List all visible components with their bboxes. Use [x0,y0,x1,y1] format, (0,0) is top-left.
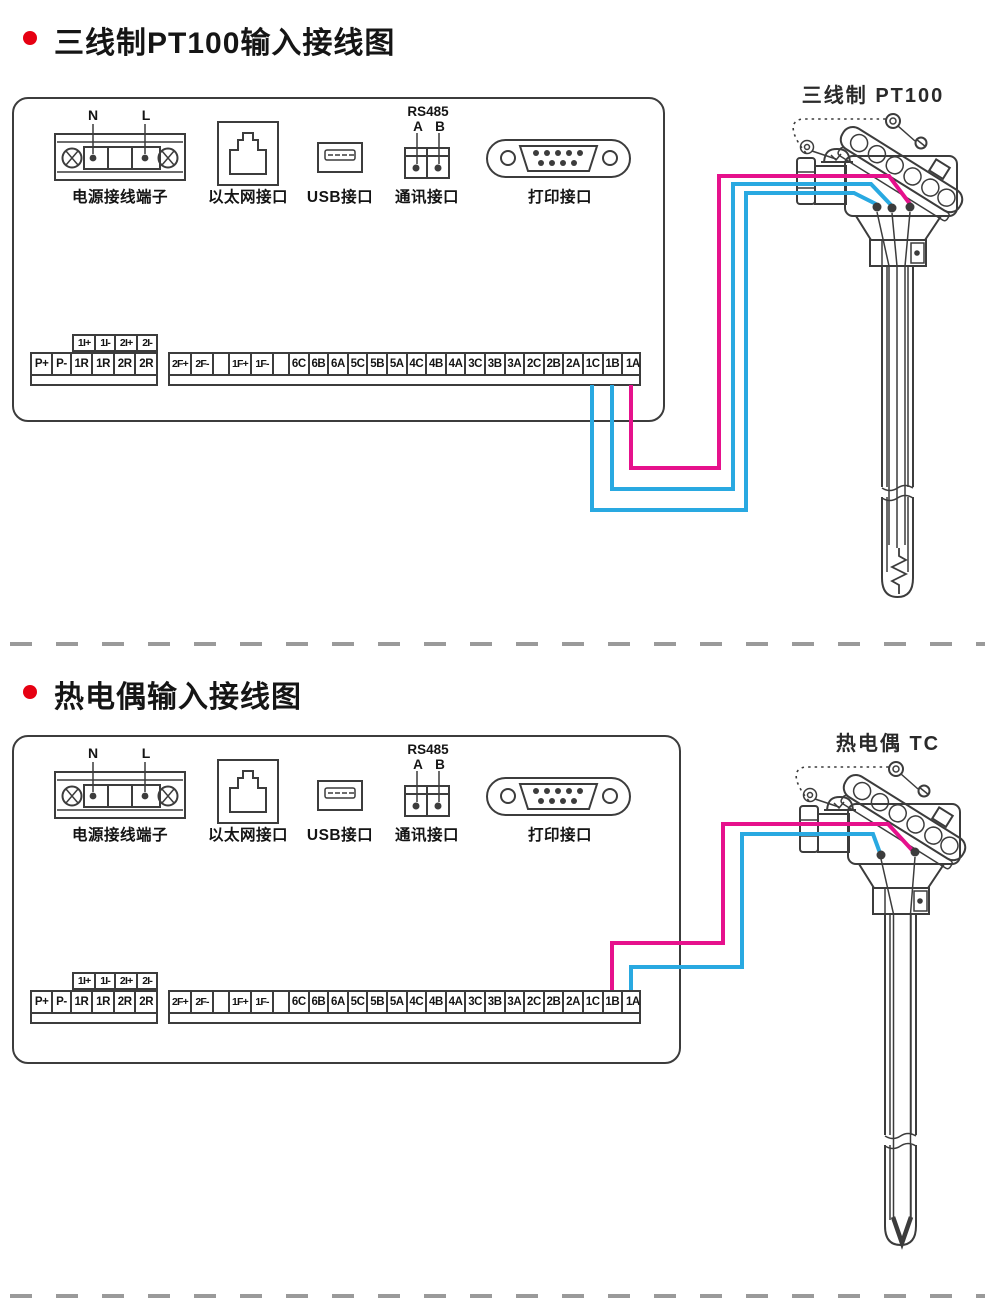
terminal-cell-1c: 1C [584,354,604,374]
section2-bullet-icon [23,685,37,699]
terminal-strip-current-inputs: 1I+1I-2I+2I- [72,334,158,352]
terminal-cell-2f: 2F- [192,992,214,1012]
pt100-element [877,212,910,594]
terminal-cell-6b: 6B [310,992,330,1012]
terminal-cell-3c: 3C [466,992,486,1012]
terminal-cell-5b: 5B [368,354,388,374]
terminal-cell-blank [274,992,290,1012]
terminal-cell-3a: 3A [506,992,526,1012]
rs485-pin-b-label: B [435,119,445,134]
rs485-label: RS485 [407,104,448,119]
terminal-cell-3c: 3C [466,354,486,374]
terminal-cell-5c: 5C [349,354,369,374]
comm-port-label: 通讯接口 [395,823,459,845]
terminal-cell-5a: 5A [388,992,408,1012]
terminal-strip-main: 2F+2F-1F+1F-6C6B6A5C5B5A4C4B4A3C3B3A2C2B… [168,352,641,376]
terminal-cell-1f: 1F- [252,992,274,1012]
terminal-cell-p: P+ [32,354,53,374]
terminal-cell-2r: 2R [136,992,156,1012]
power-pin-n-label: N [88,107,98,123]
terminal-cell-1i: 1I+ [74,336,96,350]
rs485-pin-a-label: A [413,119,423,134]
terminal-strip-current-inputs: 1I+1I-2I+2I- [72,972,158,990]
power-pin-l-label: L [142,107,151,123]
terminal-cell-1r: 1R [93,992,115,1012]
terminal-cell-1f: 1F+ [230,992,252,1012]
terminal-cell-4a: 4A [447,992,467,1012]
terminal-cell-2i: 2I+ [116,974,138,988]
terminal-cell-2f: 2F+ [170,992,192,1012]
rs485-label: RS485 [407,742,448,757]
usb-port-label: USB接口 [307,185,373,207]
terminal-cell-6b: 6B [310,354,330,374]
terminal-cell-1i: 1I+ [74,974,96,988]
terminal-cell-2i: 2I+ [116,336,138,350]
terminal-cell-1f: 1F- [252,354,274,374]
terminal-cell-4c: 4C [408,992,428,1012]
terminal-strip-left: P+P-1R1R2R2R [30,352,158,376]
terminal-cell-5a: 5A [388,354,408,374]
terminal-strip-left: P+P-1R1R2R2R [30,990,158,1014]
terminal-cell-1a: 1A [623,354,643,374]
rs485-pin-b-label: B [435,757,445,772]
terminal-cell-1i: 1I- [96,336,116,350]
terminal-cell-3b: 3B [486,354,506,374]
terminal-cell-1b: 1B [604,992,624,1012]
rs485-pin-a-label: A [413,757,423,772]
terminal-cell-blank [214,354,230,374]
terminal-cell-3b: 3B [486,992,506,1012]
printer-port-label: 打印接口 [528,823,592,845]
terminal-cell-6a: 6A [329,992,349,1012]
terminal-cell-5b: 5B [368,992,388,1012]
power-pin-n-label: N [88,745,98,761]
terminal-cell-1c: 1C [584,992,604,1012]
terminal-cell-4b: 4B [427,354,447,374]
ethernet-port-label: 以太网接口 [208,823,288,845]
terminal-cell-2i: 2I- [138,974,156,988]
terminal-cell-4c: 4C [408,354,428,374]
power-port-label: 电源接线端子 [72,185,168,207]
terminal-cell-2r: 2R [115,992,137,1012]
tc-element [881,857,915,1243]
terminal-cell-2c: 2C [525,992,545,1012]
terminal-cell-3a: 3A [506,354,526,374]
comm-port-label: 通讯接口 [395,185,459,207]
usb-port-label: USB接口 [307,823,373,845]
terminal-cell-2r: 2R [115,354,137,374]
terminal-cell-4a: 4A [447,354,467,374]
power-pin-l-label: L [142,745,151,761]
printer-port-label: 打印接口 [528,185,592,207]
terminal-cell-1b: 1B [604,354,624,374]
section2-title: 热电偶输入接线图 [54,672,302,716]
terminal-cell-6c: 6C [290,354,310,374]
terminal-cell-p: P+ [32,992,53,1012]
terminal-cell-1f: 1F+ [230,354,252,374]
terminal-cell-2b: 2B [545,992,565,1012]
section1-title: 三线制PT100输入接线图 [54,18,395,62]
power-port-label: 电源接线端子 [72,823,168,845]
terminal-cell-2b: 2B [545,354,565,374]
terminal-bar-left [30,1012,158,1024]
terminal-bar-left [30,374,158,386]
sensor-label-pt100: 三线制 PT100 [802,79,944,108]
terminal-cell-5c: 5C [349,992,369,1012]
wiring-diagram-page: 三线制PT100输入接线图 N L RS485 A B 电源接线端子 以太网接口… [0,0,990,1311]
terminal-cell-4b: 4B [427,992,447,1012]
terminal-cell-p: P- [53,992,71,1012]
terminal-cell-2c: 2C [525,354,545,374]
section-separator [10,642,985,646]
terminal-cell-1r: 1R [72,992,94,1012]
pt100-sensor-illustration [793,110,974,597]
terminal-cell-2f: 2F- [192,354,214,374]
ethernet-port-label: 以太网接口 [208,185,288,207]
terminal-cell-6a: 6A [329,354,349,374]
terminal-bar-main [168,1012,641,1024]
bottom-separator [10,1294,985,1298]
terminal-cell-2f: 2F+ [170,354,192,374]
terminal-strip-main: 2F+2F-1F+1F-6C6B6A5C5B5A4C4B4A3C3B3A2C2B… [168,990,641,1014]
sensor-label-tc: 热电偶 TC [836,727,940,756]
terminal-cell-6c: 6C [290,992,310,1012]
terminal-cell-1r: 1R [93,354,115,374]
terminal-cell-blank [274,354,290,374]
terminal-cell-p: P- [53,354,71,374]
terminal-cell-2a: 2A [564,992,584,1012]
terminal-cell-1r: 1R [72,354,94,374]
tc-sensor-illustration [796,758,977,1245]
terminal-cell-blank [214,992,230,1012]
section1-bullet-icon [23,31,37,45]
terminal-bar-main [168,374,641,386]
terminal-cell-1a: 1A [623,992,643,1012]
terminal-cell-2a: 2A [564,354,584,374]
terminal-cell-1i: 1I- [96,974,116,988]
terminal-cell-2i: 2I- [138,336,156,350]
wire-pink-1a [631,176,910,468]
terminal-cell-2r: 2R [136,354,156,374]
